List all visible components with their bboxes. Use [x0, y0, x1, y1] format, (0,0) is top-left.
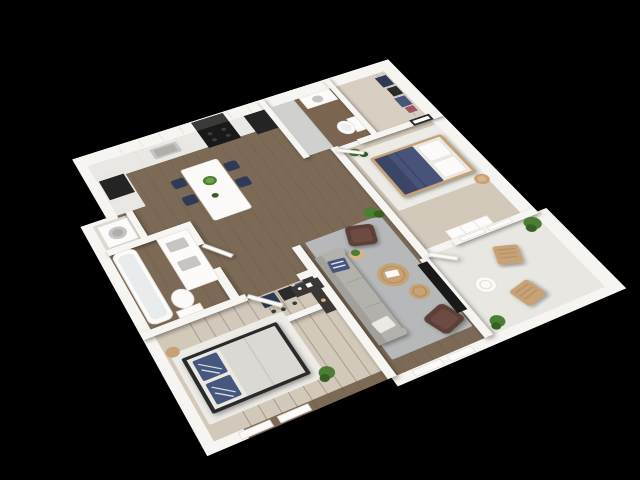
- floor-plan-render: [0, 0, 640, 480]
- armchair-1: [344, 223, 379, 247]
- building: [47, 57, 626, 466]
- floor-plan-svg: [17, 51, 640, 480]
- apartment-3d-scene: [17, 51, 640, 480]
